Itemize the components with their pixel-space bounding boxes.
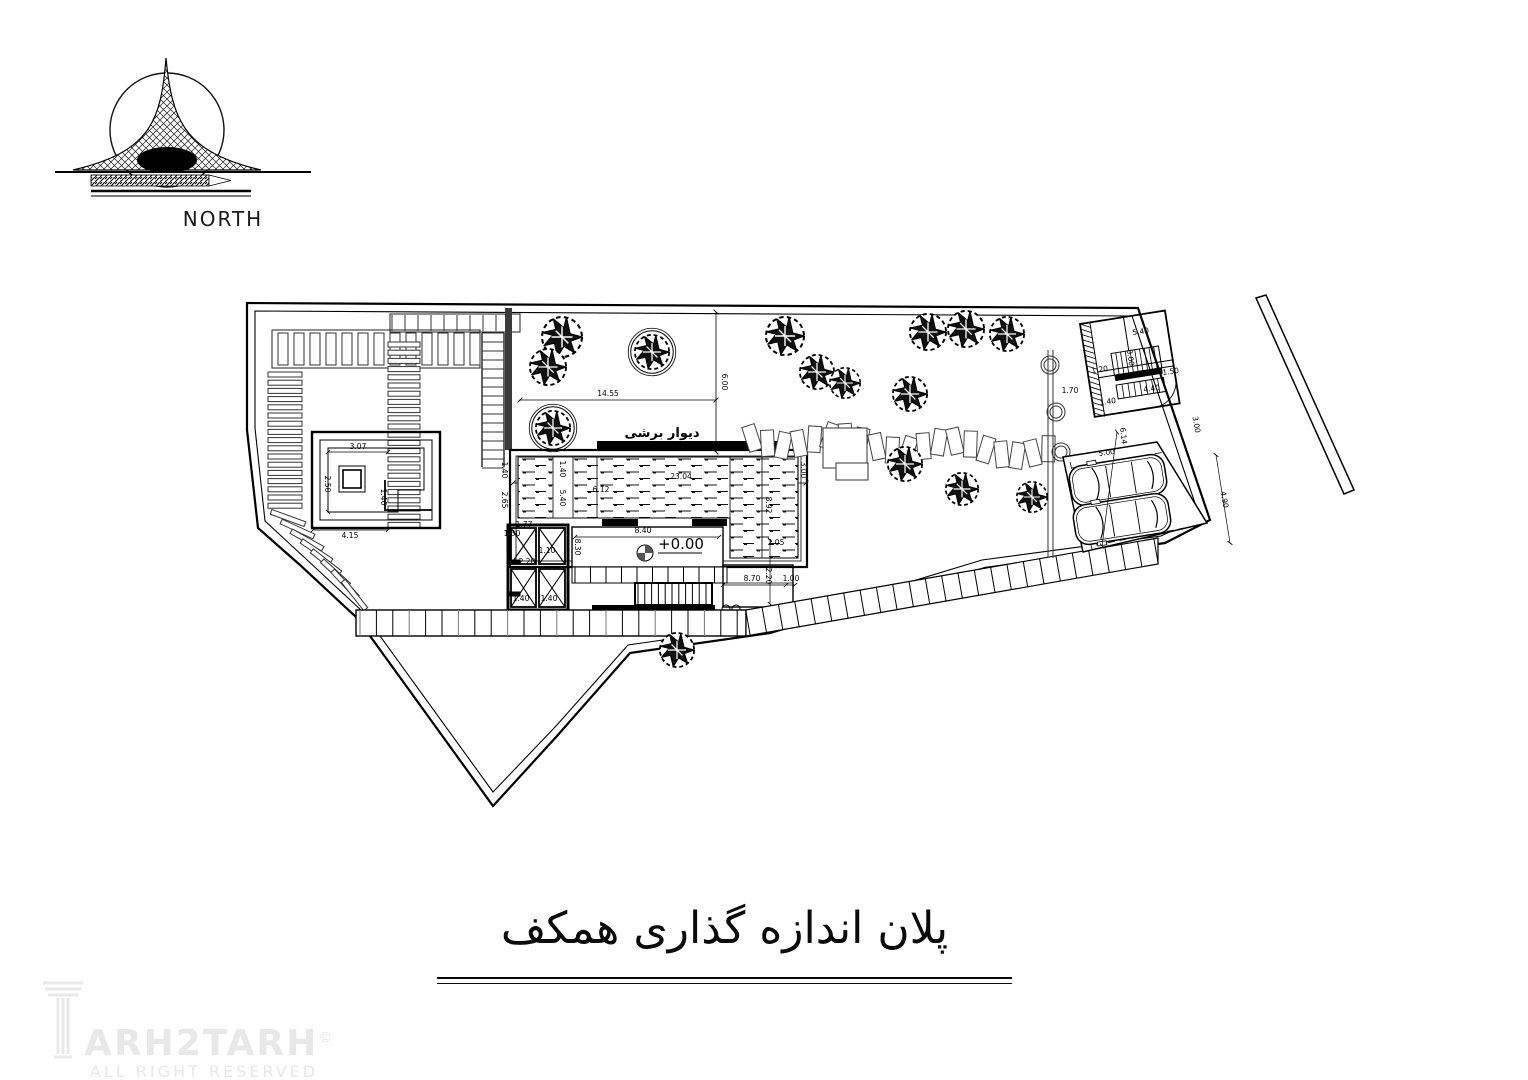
dimension-label: 14.55 [597,389,619,398]
tree-icon [530,349,566,385]
dimension-label: 3.00 [1191,416,1203,434]
dimension-label: 1.70 [1062,386,1079,395]
dimension-label: 1.10 [539,546,556,555]
garden-stairs [482,333,504,468]
dimension-label: 1.00 [783,574,800,583]
road-strip [1256,295,1354,494]
tree-icon [893,377,927,411]
dimension-label: 1.46 [379,489,388,506]
tree-circled-icon [628,328,676,376]
dimension-label: 1.40 [558,461,567,478]
dimension-label: 1.40 [541,594,558,603]
tree-icon [830,368,860,398]
garden-wall [505,308,512,450]
dimension-label: 6.14 [1118,427,1129,445]
watermark: ARH2TARH © ALL RIGHT RESERVED [42,980,332,1080]
dimension-label: 1.40 [500,462,509,479]
dimension-label: 8.70 [744,574,761,583]
dimension-label: 8.30 [573,539,582,556]
dimension-label: 3.07 [350,442,367,451]
dimension-label: 4.90 [1219,491,1231,509]
parking-area [1063,432,1230,552]
tree-icon [800,355,834,389]
dimension-label: 8.92 [764,497,773,514]
tree-icon [660,633,694,667]
dimension-label: 2.65 [500,492,509,509]
tree-icon [766,317,804,355]
dimension-label: 2.20 [764,568,773,585]
dimension-label: 1.20 [1091,364,1109,375]
watermark-copyright: © [318,1030,332,1046]
dimension-label: 2.05 [768,538,785,547]
drawing-sheet: NORTH [0,0,1528,1080]
plan-title-block: پلان اندازه گذاری همکف [437,900,1012,984]
tree-icon [888,447,922,481]
tree-icon [1017,482,1047,512]
shear-wall-mid-right [692,519,727,526]
dimension-label: 6.00 [720,374,729,391]
dimension-label: 2.20 [519,557,536,566]
tree-icon [946,473,978,505]
dimension-label: 8.40 [635,526,652,535]
title-underline [437,983,1012,984]
watermark-brand: ARH2TARH [84,1028,318,1060]
dimension-label: 4.15 [342,531,359,540]
tree-icon [990,317,1024,351]
dimension-label: 2.50 [323,476,332,493]
dimension-label: 8.00 [1125,349,1136,367]
shear-wall-top-label: دیوار برشی [624,426,699,441]
tree-circled-icon [529,404,577,452]
watermark-tagline: ALL RIGHT RESERVED [90,1062,332,1080]
shear-wall-mid-left [602,519,638,526]
title-underline [437,977,1012,979]
dimension-label: 23.04 [670,472,692,481]
dimension-label: 6.12 [593,485,610,494]
dimension-label: 5.40 [558,490,567,507]
tree-icon [948,311,984,347]
level-datum-label: +0.00 [658,535,704,553]
dimension-label: 1.40 [513,594,530,603]
tree-icon [910,314,946,350]
entry-steps [635,583,712,605]
plan-title: پلان اندازه گذاری همکف [437,900,1012,957]
dimension-label: 1.40 [1099,396,1117,407]
dimension-label: 3.00 [799,462,808,479]
dimension-label: 1.30 [504,529,521,538]
terraced-garden [268,308,520,611]
tarh2tarh-column-icon [42,980,84,1060]
dimension-label: 1.77 [516,520,533,529]
dimension-label: 1.50 [1162,366,1180,377]
